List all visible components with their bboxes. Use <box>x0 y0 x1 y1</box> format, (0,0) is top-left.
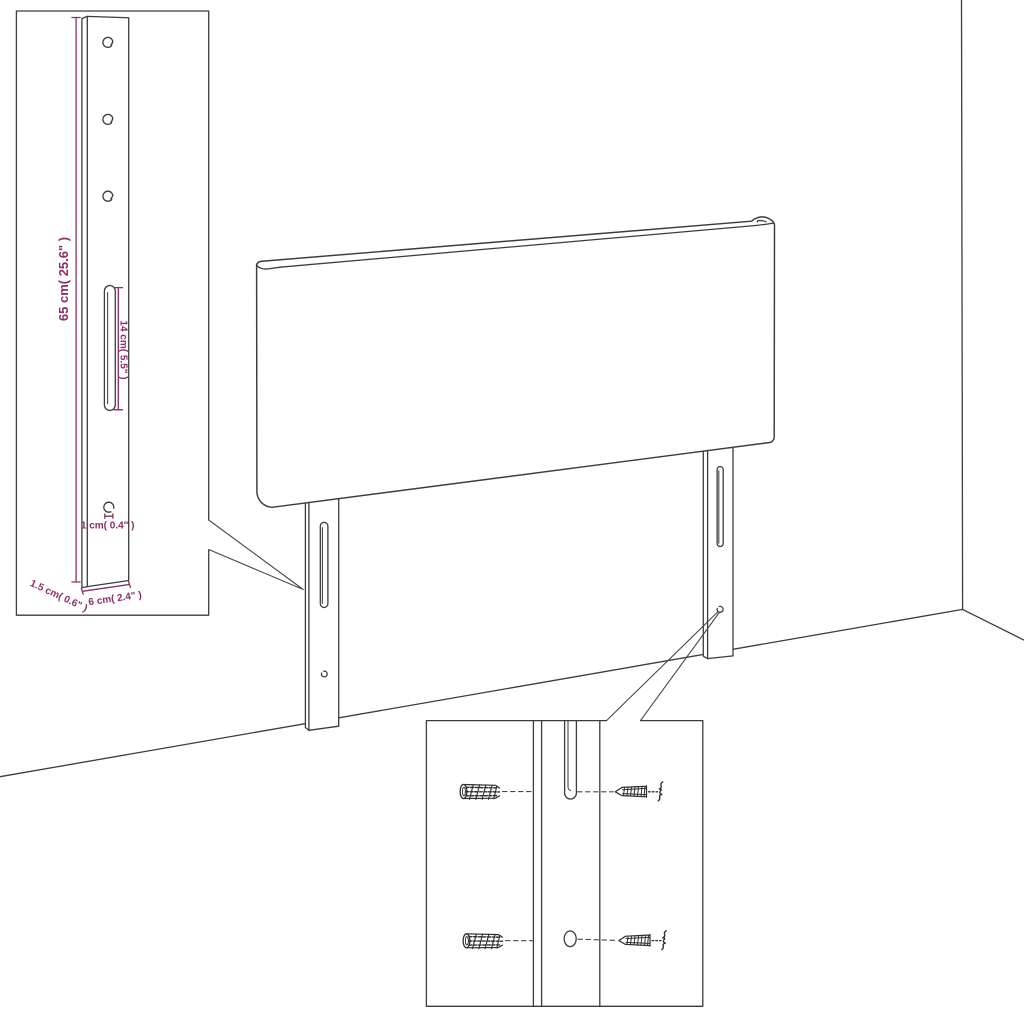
svg-text:1 cm( 0.4" ): 1 cm( 0.4" ) <box>81 521 135 532</box>
svg-text:65 cm( 25.6" ): 65 cm( 25.6" ) <box>56 237 71 321</box>
svg-text:14 cm( 5.5" ): 14 cm( 5.5" ) <box>118 320 129 379</box>
